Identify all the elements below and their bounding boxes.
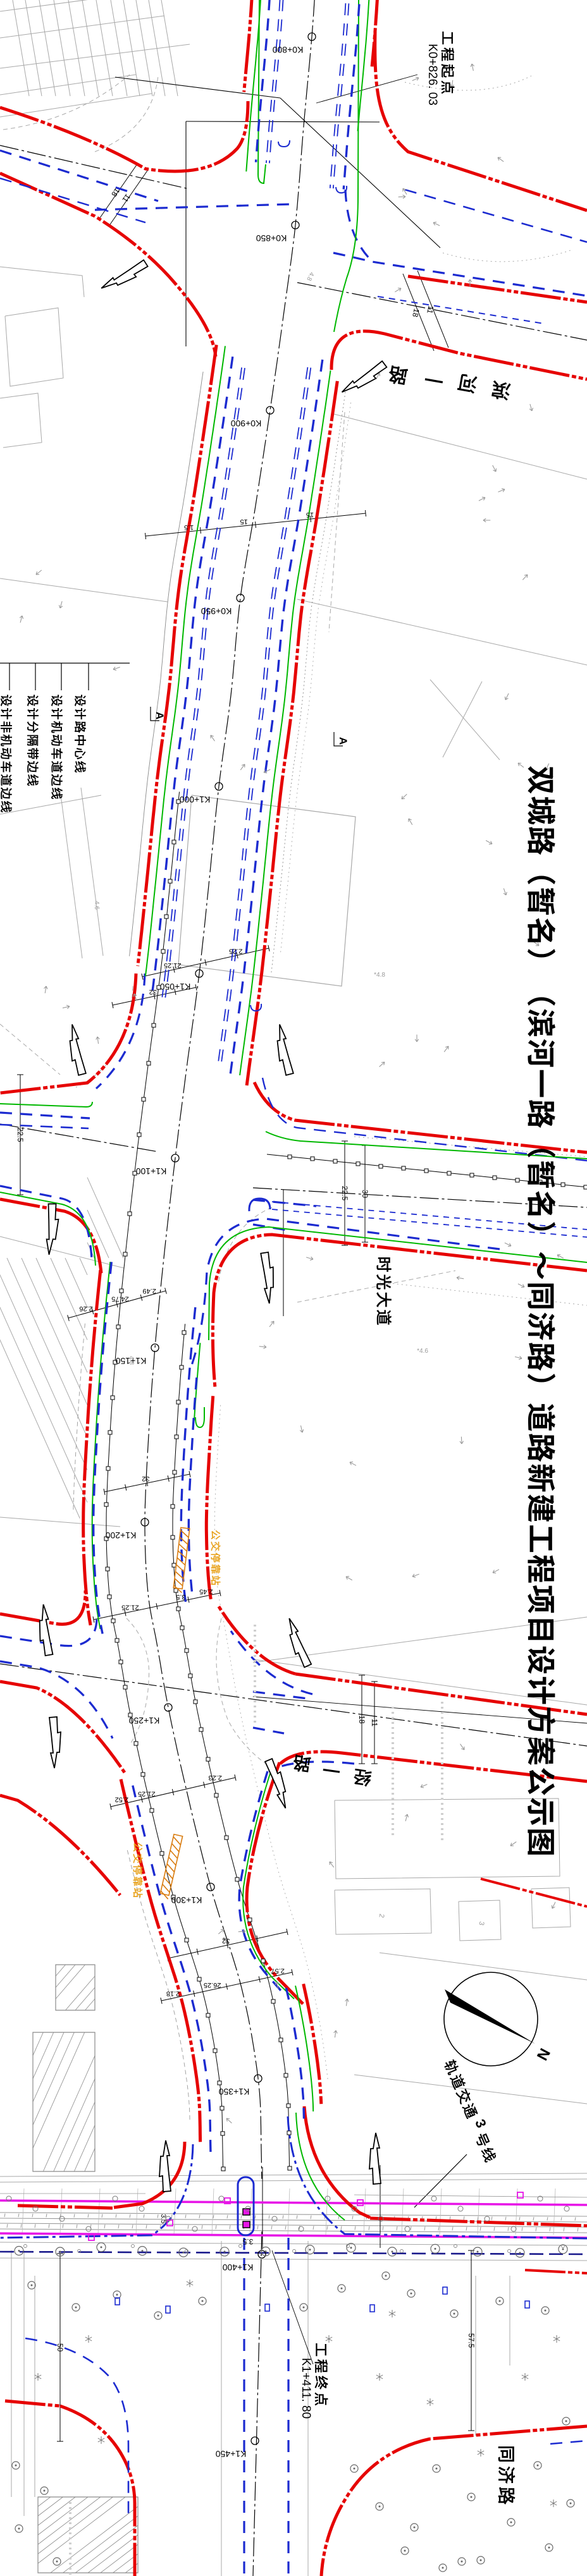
svg-text:K1+200: K1+200 [105, 1530, 136, 1541]
svg-text:K1+400: K1+400 [222, 2262, 253, 2273]
svg-text:K0+800: K0+800 [272, 45, 303, 55]
svg-text:K1+411. 80: K1+411. 80 [299, 2358, 312, 2419]
svg-text:4.8: 4.8 [128, 1356, 135, 1365]
svg-text:22.5: 22.5 [340, 1186, 349, 1201]
svg-text:11: 11 [370, 1719, 379, 1727]
svg-text:K1+350: K1+350 [218, 2087, 249, 2097]
svg-text:15: 15 [306, 511, 314, 518]
svg-text:2.23: 2.23 [208, 1774, 221, 1781]
svg-text:21.25: 21.25 [164, 961, 182, 969]
svg-text:*4.8: *4.8 [374, 972, 385, 979]
svg-text:15: 15 [240, 518, 247, 525]
svg-text:K1+450: K1+450 [215, 2449, 246, 2459]
svg-text:1.5: 1.5 [184, 523, 194, 531]
svg-text:K1+300: K1+300 [171, 1895, 202, 1905]
svg-text:50: 50 [56, 2343, 65, 2352]
svg-text:K1+000: K1+000 [179, 795, 210, 805]
svg-text:4.6: 4.6 [93, 901, 100, 910]
svg-text:3.5: 3.5 [159, 2214, 167, 2223]
svg-text:22.5: 22.5 [16, 1127, 25, 1142]
svg-text:26.25: 26.25 [204, 1981, 221, 1989]
svg-text:A: A [337, 737, 349, 745]
svg-text:21.25: 21.25 [121, 1604, 139, 1611]
svg-text:A: A [154, 712, 166, 719]
svg-text:K0+850: K0+850 [256, 233, 287, 243]
svg-text:3.5: 3.5 [176, 1593, 185, 1601]
svg-text:32: 32 [149, 988, 157, 996]
svg-text:K0+950: K0+950 [201, 606, 232, 616]
svg-text:K1+100: K1+100 [135, 1166, 166, 1176]
svg-text:K1+050: K1+050 [159, 982, 190, 992]
svg-text:2.45: 2.45 [199, 1587, 213, 1595]
svg-text:K0+900: K0+900 [230, 418, 261, 429]
svg-text:30: 30 [361, 1190, 369, 1199]
svg-text:2.57: 2.57 [271, 1967, 284, 1975]
svg-text:2.18: 2.18 [166, 1990, 180, 1998]
svg-text:18: 18 [357, 1715, 366, 1724]
svg-text:24.75: 24.75 [111, 1295, 129, 1303]
svg-text:2.49: 2.49 [142, 1287, 156, 1295]
svg-text:K1+250: K1+250 [128, 1716, 159, 1726]
svg-text:21.25: 21.25 [138, 1790, 156, 1798]
svg-text:32: 32 [142, 1475, 149, 1482]
svg-text:57.5: 57.5 [467, 2333, 476, 2348]
svg-text:2.25: 2.25 [229, 948, 242, 955]
svg-text:32: 32 [222, 1937, 230, 1944]
svg-text:2.26: 2.26 [79, 1305, 92, 1312]
svg-text:*4.6: *4.6 [417, 1348, 428, 1355]
svg-text:K0+826. 03: K0+826. 03 [426, 44, 439, 106]
svg-text:3.5: 3.5 [242, 2237, 253, 2246]
svg-text:2.52: 2.52 [115, 1796, 128, 1804]
